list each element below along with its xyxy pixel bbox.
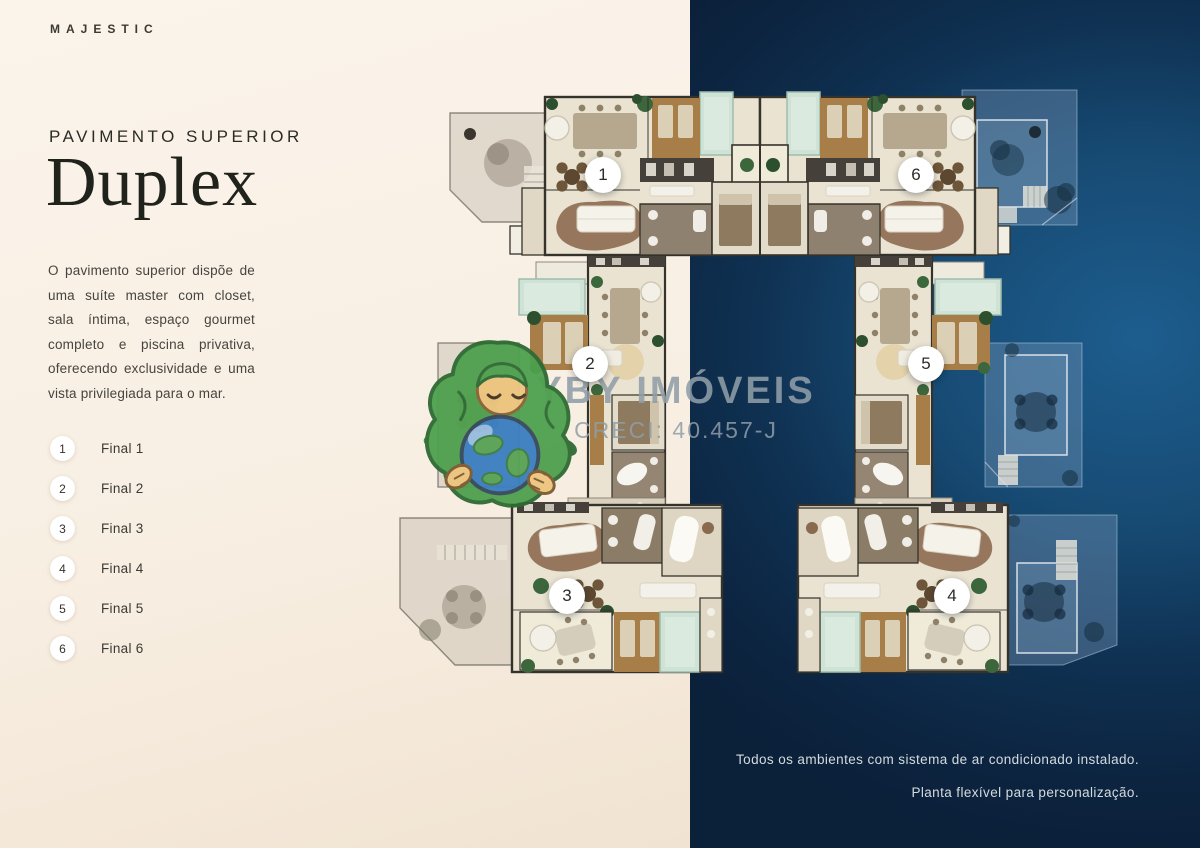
terrace-final-5 (985, 343, 1082, 487)
earth-mascot-icon (415, 333, 583, 515)
unit-badge-2: 2 (572, 346, 608, 382)
floor-plans-graphic (0, 0, 1200, 848)
footer-notes: Todos os ambientes com sistema de ar con… (736, 743, 1139, 809)
terrace-final-4 (1008, 515, 1117, 665)
unit-badge-6: 6 (898, 157, 934, 193)
unit-badge-1: 1 (585, 157, 621, 193)
terrace-final-3 (400, 518, 512, 665)
unit-badge-5: 5 (908, 346, 944, 382)
brochure-page: MAJESTIC PAVIMENTO SUPERIOR Duplex O pav… (0, 0, 1200, 848)
footer-note-1: Todos os ambientes com sistema de ar con… (736, 743, 1139, 776)
unit-badge-3: 3 (549, 578, 585, 614)
footer-note-2: Planta flexível para personalização. (736, 776, 1139, 809)
unit-badge-4: 4 (934, 578, 970, 614)
